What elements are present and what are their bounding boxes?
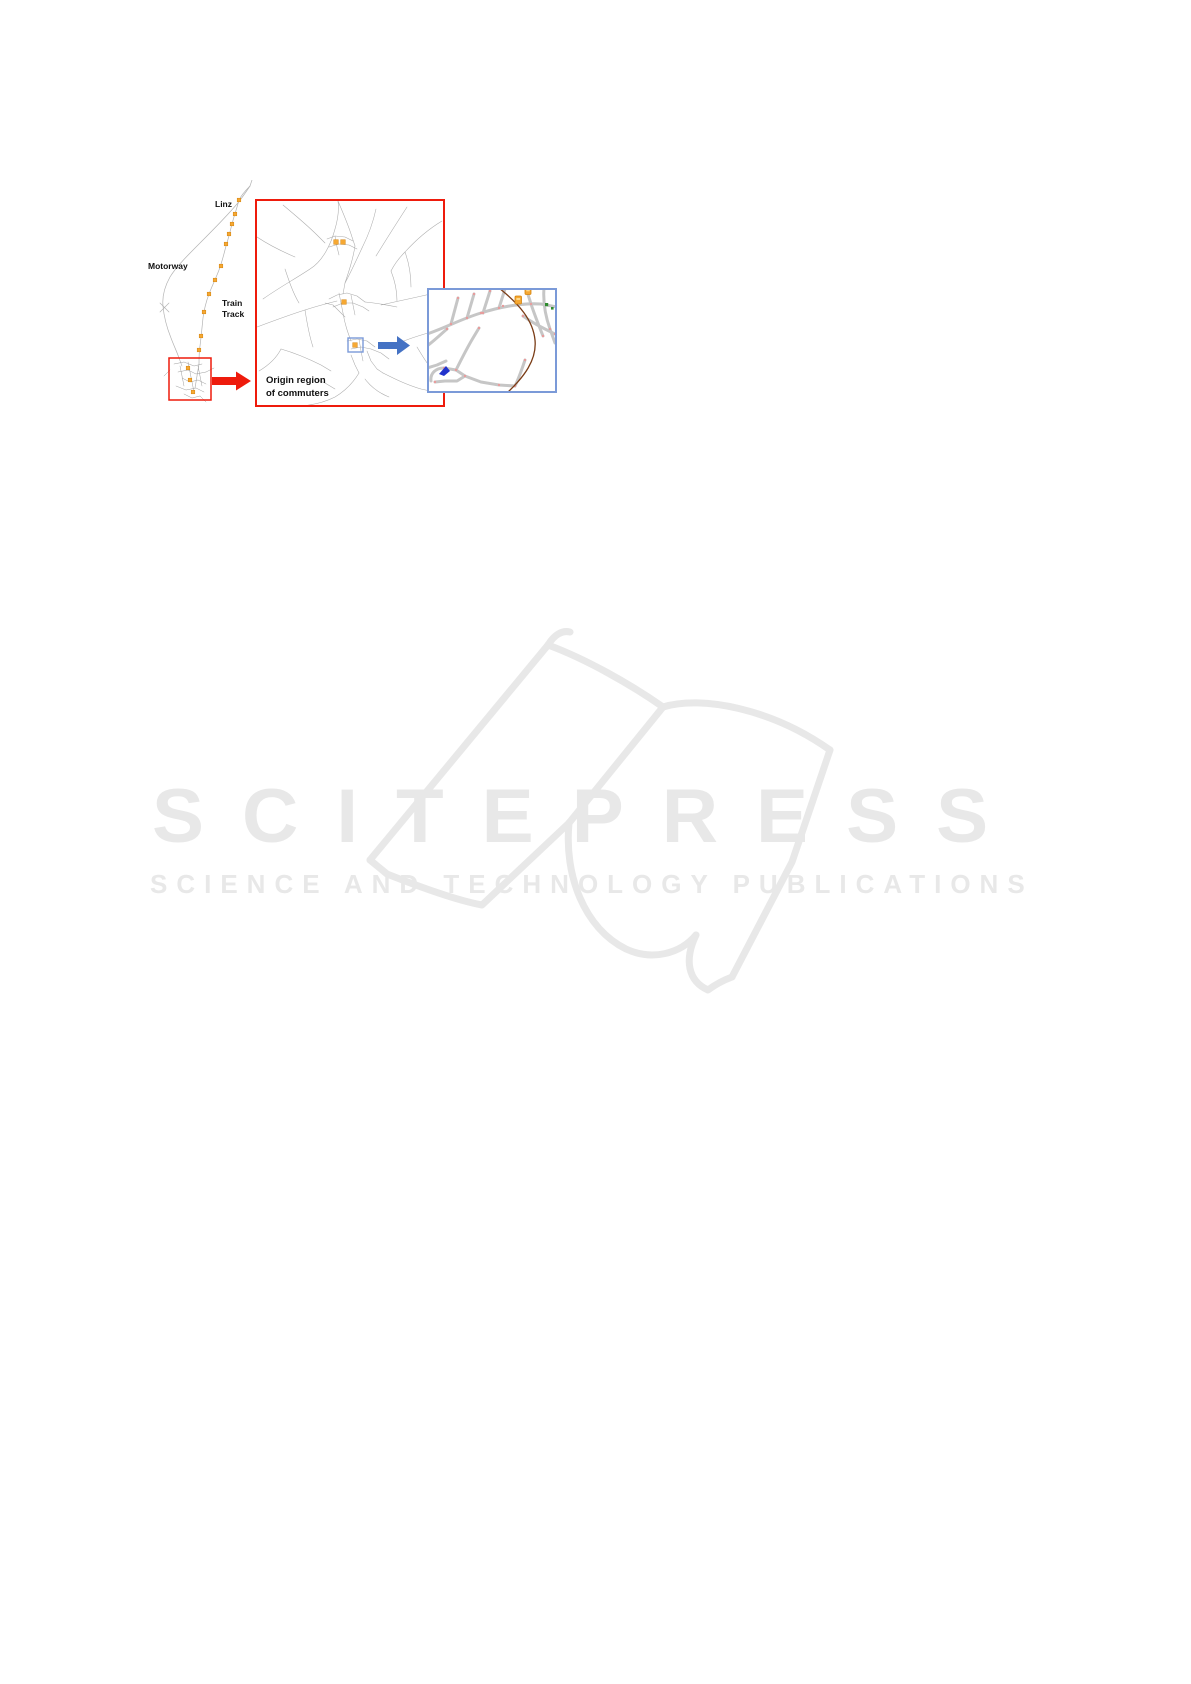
street-detail-map	[429, 290, 555, 391]
watermark-logo-text: SCITEPRESS	[152, 772, 1026, 860]
city-label: Linz	[215, 199, 232, 209]
origin-region-caption: Origin region of commuters	[266, 375, 329, 400]
origin-caption-line1: Origin region	[266, 375, 326, 386]
train-vehicle-icon	[515, 296, 522, 304]
figure-network-map: Linz Motorway Train Track	[0, 0, 600, 430]
train-track-line	[195, 200, 239, 388]
train-station-markers	[186, 198, 241, 394]
watermark: SCITEPRESS SCIENCE AND TECHNOLOGY PUBLIC…	[0, 560, 1191, 1040]
paper-page: Linz Motorway Train Track	[0, 0, 1191, 1684]
train-track-label-line2: Track	[222, 309, 244, 319]
train-track-label-line1: Train	[222, 298, 242, 308]
street-detail-box	[427, 288, 557, 393]
origin-caption-line2: of commuters	[266, 388, 329, 399]
junction-x-icon	[160, 303, 169, 312]
red-zoom-arrow-icon	[209, 369, 254, 393]
train-vehicle-icon	[525, 290, 531, 295]
motorway-label: Motorway	[148, 261, 188, 271]
watermark-tagline-text: SCIENCE AND TECHNOLOGY PUBLICATIONS	[150, 869, 1034, 900]
minimap-top-road	[239, 180, 252, 200]
blue-zoom-arrow-icon	[375, 333, 413, 358]
motorway-line	[163, 186, 250, 358]
origin-region-box: Origin region of commuters	[255, 199, 445, 407]
